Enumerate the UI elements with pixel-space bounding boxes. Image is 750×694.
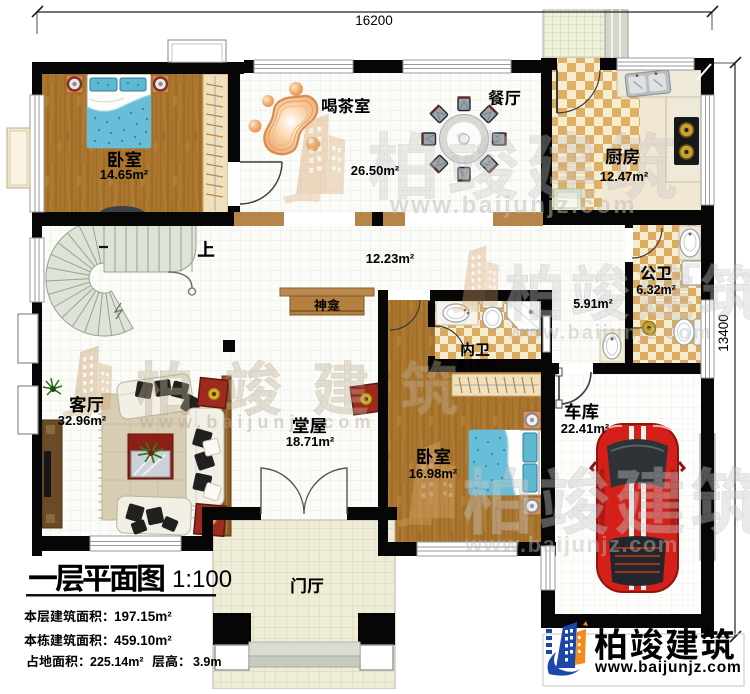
svg-text:12.23m²: 12.23m²: [366, 251, 415, 266]
svg-text:www.baijunjz.com: www.baijunjz.com: [139, 412, 375, 432]
svg-text:www.baijunjz.com: www.baijunjz.com: [389, 192, 637, 219]
svg-text:32.96m²: 32.96m²: [58, 413, 107, 428]
svg-text:www.baijunjz.com: www.baijunjz.com: [507, 322, 713, 344]
svg-text:18.71m²: 18.71m²: [286, 434, 335, 449]
svg-text:459.10m²: 459.10m²: [114, 633, 172, 648]
svg-text:14.65m²: 14.65m²: [100, 167, 149, 182]
svg-text:3.9m: 3.9m: [193, 655, 222, 669]
svg-text:www.baijunjz.com: www.baijunjz.com: [594, 659, 742, 676]
svg-text:5.91m²: 5.91m²: [573, 297, 613, 311]
svg-text:www.baijunjz.com: www.baijunjz.com: [464, 532, 679, 557]
svg-text:1:100: 1:100: [172, 566, 232, 593]
svg-text:6.32m²: 6.32m²: [636, 283, 676, 297]
svg-text:16.98m²: 16.98m²: [409, 466, 458, 481]
svg-text:22.41m²: 22.41m²: [561, 421, 610, 436]
svg-text:12.47m²: 12.47m²: [600, 169, 649, 184]
svg-text:26.50m²: 26.50m²: [351, 163, 400, 178]
svg-text:16200: 16200: [355, 13, 393, 28]
svg-text:197.15m²: 197.15m²: [114, 609, 172, 624]
svg-text:225.14m²: 225.14m²: [90, 655, 144, 669]
svg-text:4.17m²: 4.17m²: [457, 358, 497, 372]
